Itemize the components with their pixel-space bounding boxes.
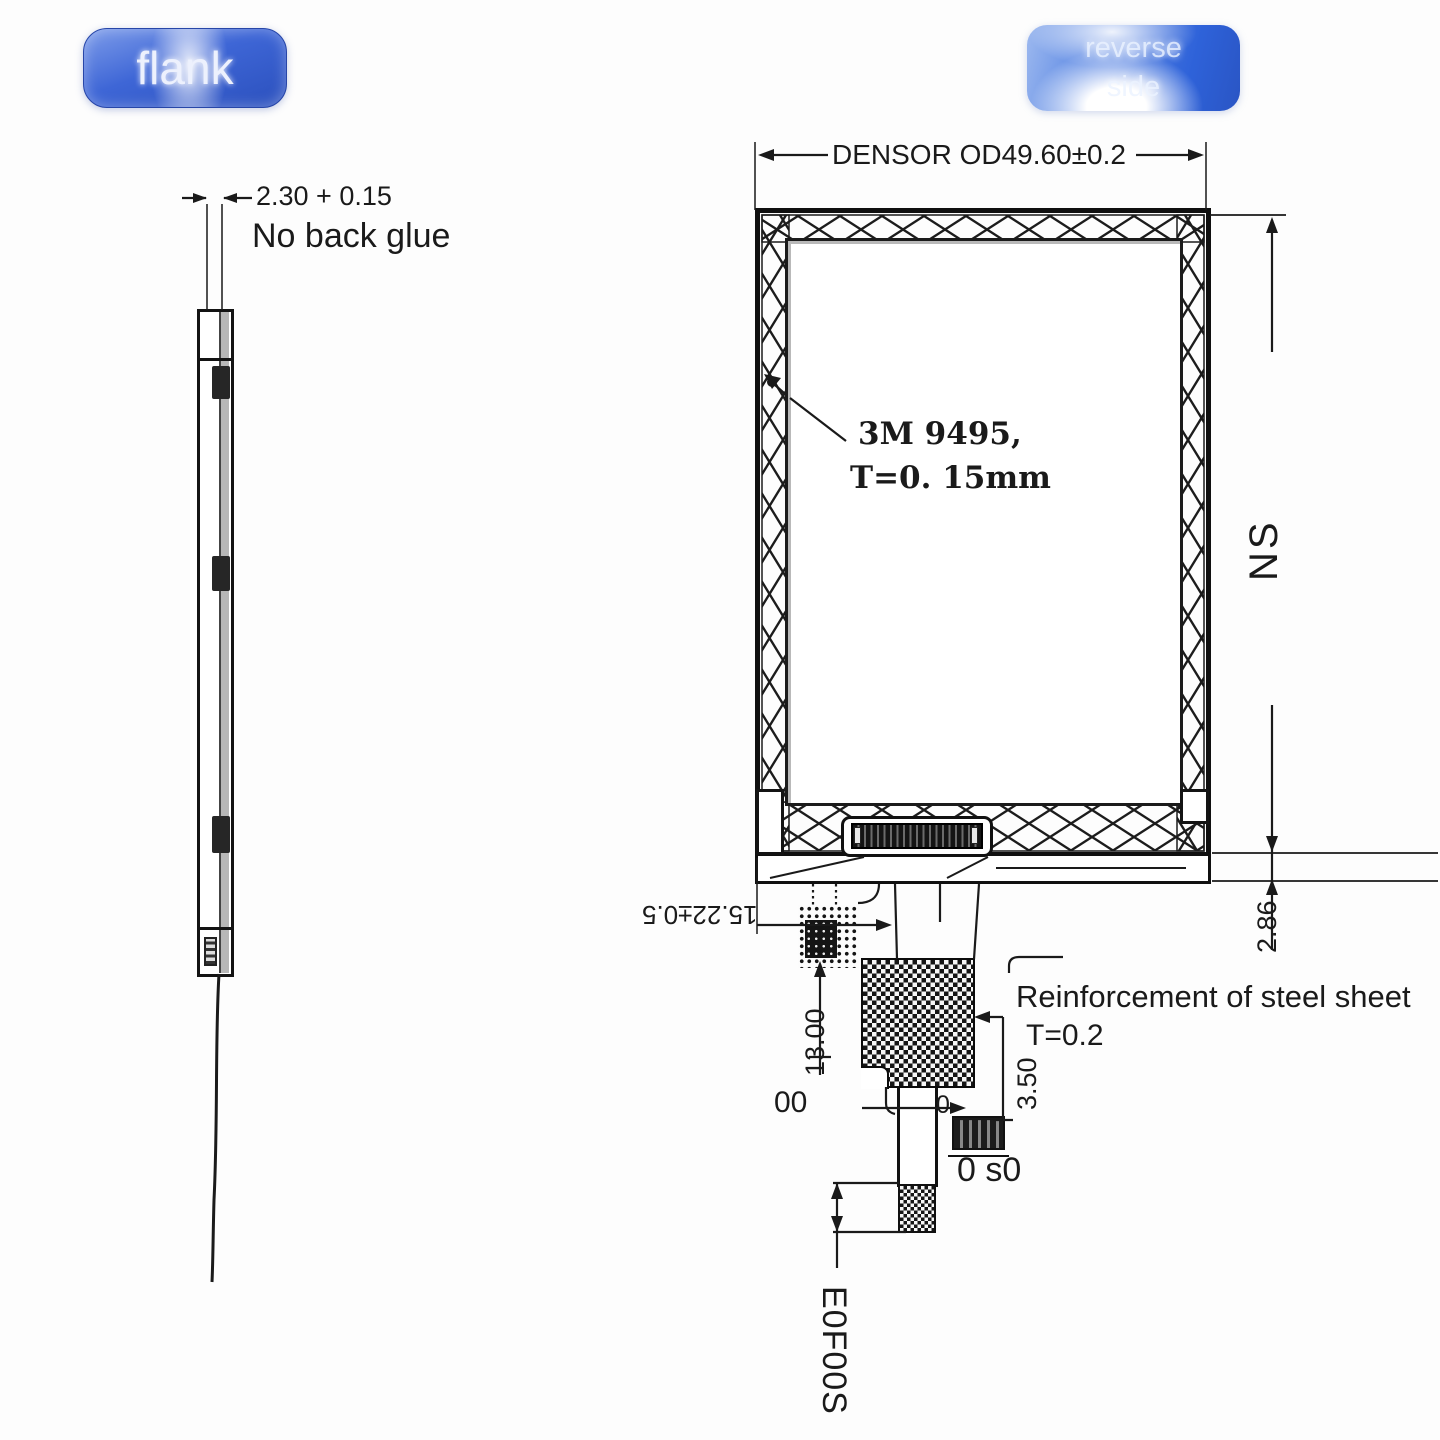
fpc-zero-label: 0 [936, 1091, 950, 1120]
side-view-connector [204, 937, 217, 966]
side-view-tab [212, 556, 230, 591]
side-view-tab [212, 816, 230, 853]
drawing-canvas: 2.30 + 0.15 No back glue DENSOR OD49.60±… [0, 0, 1440, 1440]
fpc-tail-end [898, 1184, 936, 1233]
flank-view-tag-label: flank [136, 41, 233, 95]
connector-end-slot [854, 827, 861, 844]
reinforcement-note-line2: T=0.2 [1026, 1019, 1104, 1053]
fpc-output-connector [952, 1116, 1005, 1150]
no-back-glue-note: No back glue [252, 217, 450, 256]
connector-height-dim-label: 3.50 [1012, 1057, 1043, 1110]
reinforcement-note-line1: Reinforcement of steel sheet [1016, 979, 1411, 1015]
fpc-length-dim-label: 13.00 [800, 1008, 831, 1076]
reverse-view-tag[interactable]: reverse side [1027, 25, 1240, 111]
front-view-frame [755, 208, 1211, 857]
fpc-offset-dim-label: 15.22±0.5 [642, 899, 757, 930]
fpc-tail-label: E0F00S [814, 1286, 853, 1415]
side-view-backlight-strip [219, 312, 229, 973]
sensor-width-dim-label: DENSOR OD49.60±0.2 [832, 139, 1126, 171]
frame-bottom-bar [755, 853, 1211, 884]
fpc-tail-strip [897, 1086, 938, 1187]
side-view-separator-top [200, 358, 231, 361]
side-view-separator-bottom [200, 927, 231, 930]
fpc-ic-component [798, 905, 859, 968]
adhesive-note-line2: T=0. 15mm [850, 460, 1051, 496]
steel-sheet-notch [861, 1066, 889, 1089]
connector-end-slot [971, 827, 978, 844]
reverse-view-tag-label: reverse side [1064, 29, 1204, 107]
fpc-00-label: 00 [774, 1086, 807, 1120]
frame-right-clip [1180, 789, 1209, 824]
frame-left-clip [756, 789, 784, 855]
board-connector-pins [851, 823, 983, 849]
bottom-thickness-dim-label: 2.86 [1252, 900, 1283, 953]
side-view-tab [212, 366, 230, 399]
steel-sheet-reinforcement [861, 958, 975, 1088]
ns-height-label: NS [1242, 519, 1287, 581]
adhesive-note-line1: 3M 9495, [858, 416, 1022, 452]
side-thickness-dim-label: 2.30 + 0.15 [256, 181, 392, 212]
fpc-connector-label: 0 s0 [957, 1151, 1021, 1190]
flank-view-tag[interactable]: flank [83, 28, 287, 108]
ic-die [805, 920, 837, 958]
